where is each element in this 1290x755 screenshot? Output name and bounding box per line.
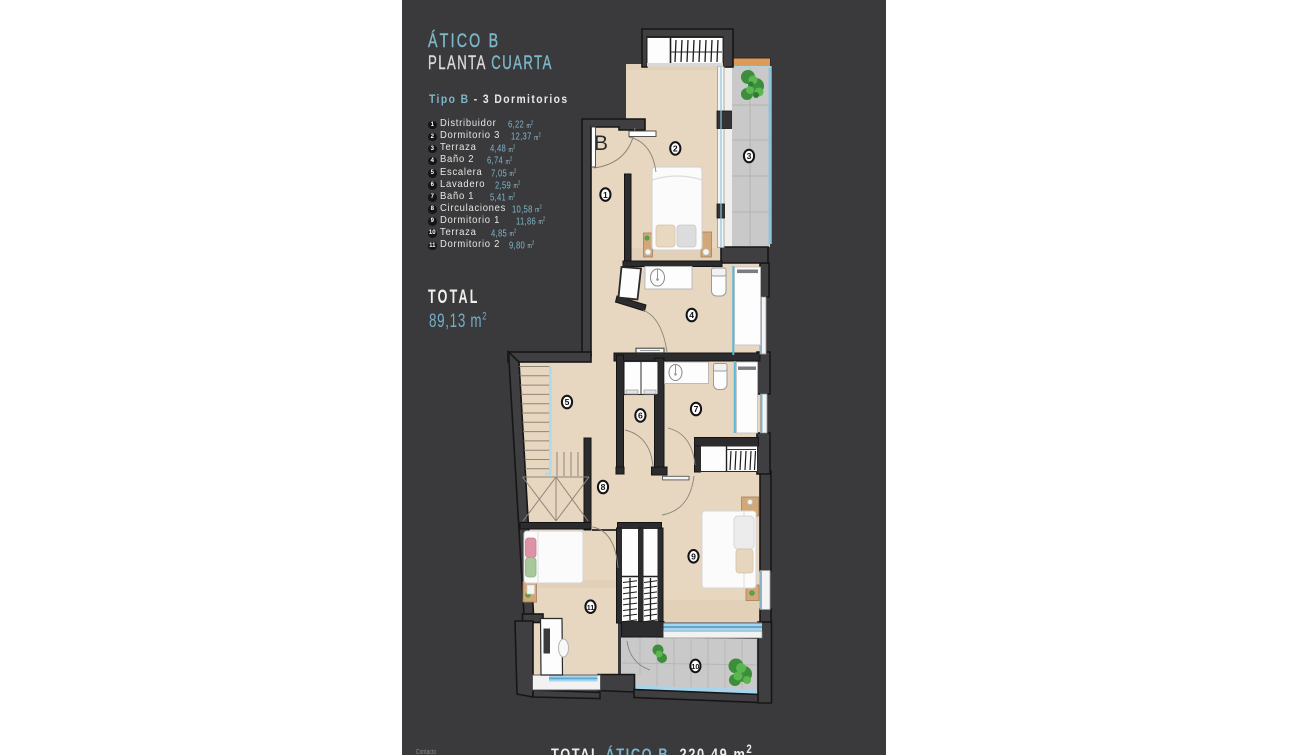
svg-text:B: B	[594, 132, 608, 155]
svg-text:4: 4	[689, 310, 694, 320]
svg-text:9: 9	[691, 552, 696, 562]
svg-text:10: 10	[691, 662, 699, 671]
svg-text:7: 7	[694, 404, 699, 414]
svg-text:2: 2	[673, 144, 678, 154]
svg-text:3: 3	[747, 151, 752, 161]
svg-text:8: 8	[601, 482, 606, 492]
svg-text:11: 11	[587, 603, 595, 612]
svg-text:1: 1	[603, 190, 608, 200]
svg-text:5: 5	[565, 397, 570, 407]
svg-text:6: 6	[638, 411, 643, 421]
